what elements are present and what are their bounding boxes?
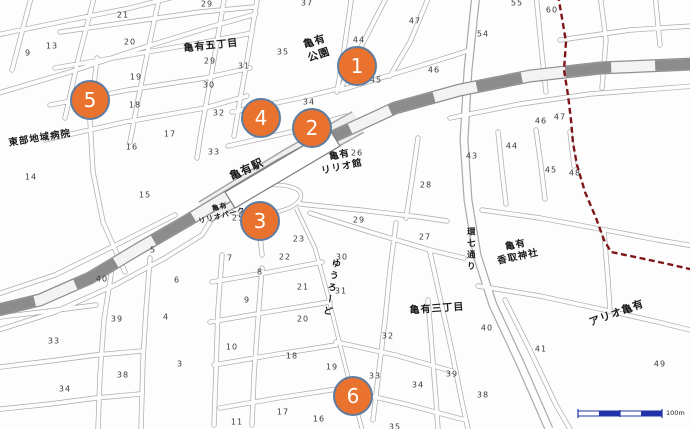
marker-2[interactable]: 2 <box>292 108 332 148</box>
scale-label: 100m <box>666 409 685 417</box>
marker-1[interactable]: 1 <box>337 46 377 86</box>
marker-6[interactable]: 6 <box>333 376 373 416</box>
map-canvas[interactable]: 2937556021475444201335929314619453034183… <box>0 0 690 429</box>
marker-5[interactable]: 5 <box>70 80 110 120</box>
marker-3[interactable]: 3 <box>240 201 280 241</box>
marker-4[interactable]: 4 <box>241 98 281 138</box>
